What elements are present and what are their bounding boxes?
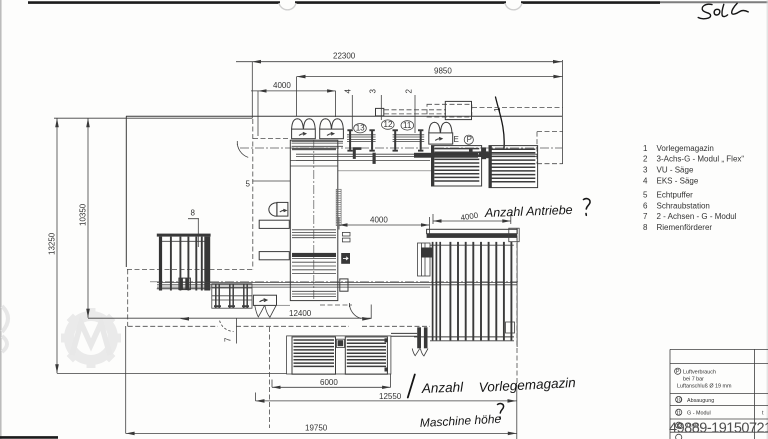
svg-text:8: 8 <box>643 223 648 232</box>
svg-text:2: 2 <box>405 89 414 94</box>
svg-text:Maschine höhe: Maschine höhe <box>419 412 501 430</box>
svg-text:1: 1 <box>643 144 648 153</box>
svg-text:3: 3 <box>643 166 648 175</box>
svg-text:Luftanschluß Ø 19 mm: Luftanschluß Ø 19 mm <box>677 384 732 390</box>
svg-text:P: P <box>467 135 472 144</box>
svg-text:9850: 9850 <box>434 66 452 75</box>
svg-text:Luftverbrauch: Luftverbrauch <box>683 370 716 376</box>
svg-text:10: 10 <box>676 398 682 404</box>
svg-text:Absaugung: Absaugung <box>687 398 714 404</box>
svg-text:t: t <box>762 411 764 417</box>
svg-text:5: 5 <box>643 191 648 200</box>
svg-text:EKS - Säge: EKS - Säge <box>657 177 699 186</box>
svg-text:49889-19150721¹: 49889-19150721¹ <box>669 421 768 437</box>
svg-text:12550: 12550 <box>379 392 402 401</box>
svg-text:7: 7 <box>643 212 648 221</box>
svg-text:3-Achs-G - Modul „ Flex“: 3-Achs-G - Modul „ Flex“ <box>657 154 745 163</box>
svg-text:6000: 6000 <box>320 378 338 387</box>
svg-text:11: 11 <box>676 410 682 416</box>
svg-text:7: 7 <box>224 337 233 342</box>
svg-text:12400: 12400 <box>289 309 312 318</box>
svg-text:3: 3 <box>369 89 378 94</box>
svg-text:12: 12 <box>384 120 393 129</box>
svg-text:4000: 4000 <box>370 216 388 225</box>
svg-text:Vorlegemagazin: Vorlegemagazin <box>657 144 714 153</box>
svg-text:10350: 10350 <box>79 203 88 226</box>
svg-text:Echtpuffer: Echtpuffer <box>657 191 694 200</box>
svg-text:Schraubstation: Schraubstation <box>657 201 710 210</box>
svg-text:4000: 4000 <box>273 81 291 90</box>
svg-text:bei 7 bar: bei 7 bar <box>683 376 704 382</box>
svg-text:Vorlegemagazin: Vorlegemagazin <box>478 375 576 395</box>
svg-text:Anzahl: Anzahl <box>421 380 465 397</box>
svg-text:2: 2 <box>643 154 648 163</box>
svg-text:11: 11 <box>403 121 412 130</box>
svg-text:E: E <box>454 135 459 144</box>
svg-text:6: 6 <box>643 201 648 210</box>
svg-text:8: 8 <box>191 209 196 218</box>
svg-text:4: 4 <box>643 177 648 186</box>
svg-text:4: 4 <box>344 89 353 94</box>
svg-text:P: P <box>676 369 680 375</box>
svg-text:Anzahl Antriebe: Anzahl Antriebe <box>484 203 573 220</box>
svg-text:19750: 19750 <box>305 424 328 433</box>
svg-text:2 - Achsen - G - Modul: 2 - Achsen - G - Modul <box>657 212 737 221</box>
svg-text:Riemenförderer: Riemenförderer <box>657 223 713 232</box>
svg-text:13: 13 <box>356 124 365 133</box>
svg-text:13250: 13250 <box>48 232 57 255</box>
svg-text:G - Modul: G - Modul <box>687 411 711 417</box>
svg-text:22300: 22300 <box>333 52 356 61</box>
svg-text:VU - Säge: VU - Säge <box>657 166 694 175</box>
svg-text:5: 5 <box>246 180 251 189</box>
